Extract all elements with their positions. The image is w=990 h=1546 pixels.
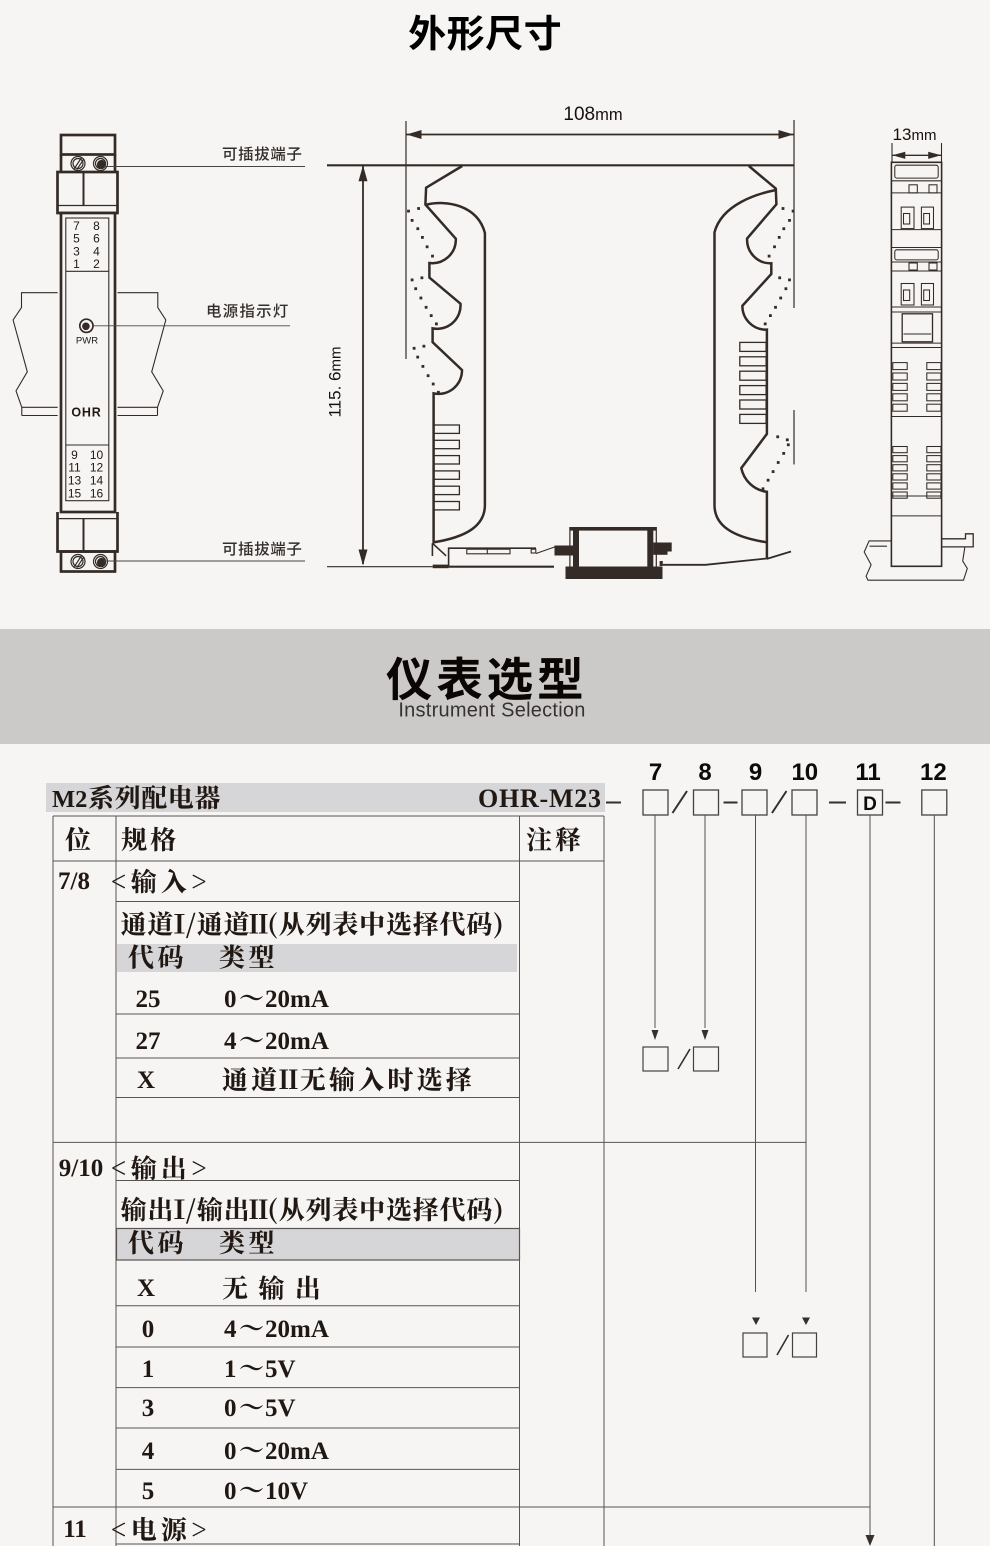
svg-text:20mA: 20mA bbox=[265, 1438, 329, 1465]
svg-text:5: 5 bbox=[142, 1478, 155, 1505]
svg-text:9: 9 bbox=[749, 759, 762, 786]
svg-text:11: 11 bbox=[855, 759, 880, 786]
svg-text:20mA: 20mA bbox=[265, 1316, 329, 1343]
svg-text:115. 6mm: 115. 6mm bbox=[326, 346, 345, 417]
svg-text:0: 0 bbox=[224, 1395, 237, 1422]
svg-text:X: X bbox=[137, 1067, 155, 1094]
svg-text:5V: 5V bbox=[265, 1356, 296, 1383]
svg-text:9: 9 bbox=[71, 448, 78, 462]
svg-text:4: 4 bbox=[224, 1316, 237, 1343]
svg-text:PWR: PWR bbox=[76, 336, 98, 347]
svg-text:16: 16 bbox=[90, 487, 104, 501]
svg-text:11: 11 bbox=[68, 461, 81, 475]
svg-text:27: 27 bbox=[136, 1028, 161, 1055]
svg-text:7: 7 bbox=[649, 759, 662, 786]
svg-text:4: 4 bbox=[224, 1028, 237, 1055]
svg-text:5V: 5V bbox=[265, 1395, 296, 1422]
svg-text:0: 0 bbox=[224, 1438, 237, 1465]
svg-text:X: X bbox=[137, 1275, 155, 1302]
svg-text:8: 8 bbox=[698, 759, 711, 786]
svg-text:10: 10 bbox=[90, 448, 104, 462]
svg-text:13mm: 13mm bbox=[893, 125, 937, 144]
svg-text:25: 25 bbox=[136, 986, 161, 1013]
svg-text:3: 3 bbox=[142, 1395, 155, 1422]
svg-text:15: 15 bbox=[68, 487, 82, 501]
svg-text:20mA: 20mA bbox=[265, 1028, 329, 1055]
svg-text:14: 14 bbox=[90, 474, 104, 488]
svg-text:OHR: OHR bbox=[71, 406, 101, 420]
svg-text:4: 4 bbox=[142, 1438, 155, 1465]
svg-text:1: 1 bbox=[142, 1356, 155, 1383]
svg-text:10: 10 bbox=[791, 759, 818, 786]
svg-text:12: 12 bbox=[90, 461, 104, 475]
svg-text:0: 0 bbox=[142, 1316, 155, 1343]
svg-text:11: 11 bbox=[63, 1516, 87, 1543]
svg-text:D: D bbox=[863, 794, 877, 815]
svg-text:1: 1 bbox=[73, 257, 80, 271]
svg-text:M2: M2 bbox=[52, 786, 87, 813]
svg-text:12: 12 bbox=[920, 759, 947, 786]
svg-text:1: 1 bbox=[224, 1356, 237, 1383]
svg-text:13: 13 bbox=[68, 474, 82, 488]
svg-text:2: 2 bbox=[93, 257, 100, 271]
svg-text:OHR-M23: OHR-M23 bbox=[478, 784, 601, 813]
svg-text:10V: 10V bbox=[265, 1478, 308, 1505]
svg-text:108mm: 108mm bbox=[563, 104, 622, 125]
svg-text:20mA: 20mA bbox=[265, 986, 329, 1013]
svg-text:Instrument Selection: Instrument Selection bbox=[398, 700, 585, 722]
svg-text:0: 0 bbox=[224, 1478, 237, 1505]
svg-text:9/10: 9/10 bbox=[59, 1155, 103, 1182]
svg-text:7/8: 7/8 bbox=[58, 868, 90, 895]
svg-text:0: 0 bbox=[224, 986, 237, 1013]
